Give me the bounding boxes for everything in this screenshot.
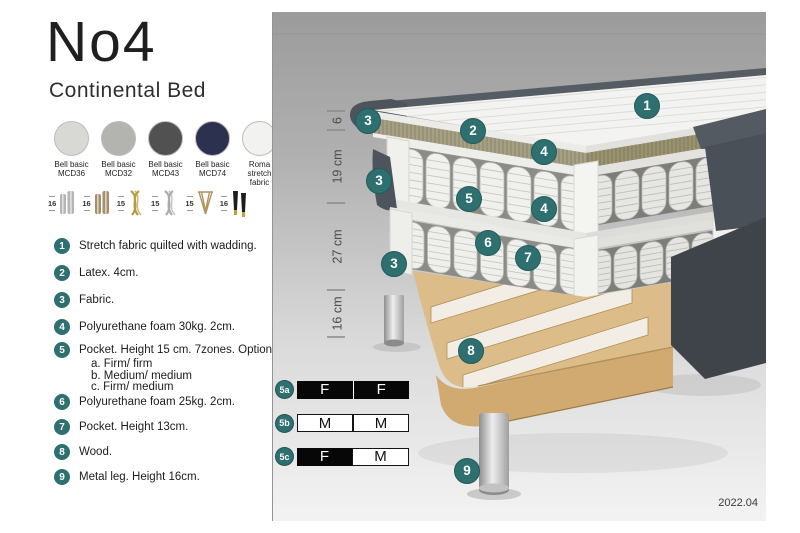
swatch-cell: Bell basicMCD43 [144, 121, 187, 187]
svg-text:3: 3 [375, 173, 383, 188]
swatch-cell: Bell basicMCD32 [97, 121, 140, 187]
leg-option: 16 [82, 189, 112, 217]
leg-size: 15 [117, 194, 125, 213]
fabric-swatch [101, 121, 136, 156]
swatch-cell: Bell basicMCD74 [191, 121, 234, 187]
leg-size: 15 [151, 194, 159, 213]
leg-option: 15 [185, 189, 215, 217]
svg-text:6: 6 [484, 235, 492, 250]
firmness-bar: MM [297, 414, 409, 432]
dimension-label: 27 cm [330, 229, 344, 263]
svg-text:3: 3 [390, 256, 398, 271]
feature-item: 8Wood. [54, 444, 112, 460]
callout-marker: 3 [367, 169, 392, 194]
firmness-row: 5bMM [275, 414, 409, 433]
feature-number-badge: 2 [54, 265, 70, 281]
metal-leg-front [479, 413, 509, 495]
callout-marker: 3 [382, 252, 407, 277]
callout-marker: 1 [635, 94, 660, 119]
feature-text: Metal leg. Height 16cm. [79, 469, 200, 483]
feature-text: Fabric. [79, 292, 114, 306]
feature-number-badge: 7 [54, 419, 70, 435]
svg-text:1: 1 [643, 98, 651, 113]
callout-marker: 4 [532, 197, 557, 222]
feature-text: Latex. 4cm. [79, 265, 138, 279]
feature-number-badge: 9 [54, 469, 70, 485]
feature-item: 4Polyurethane foam 30kg. 2cm. [54, 319, 235, 335]
leg-size: 15 [185, 194, 193, 213]
feature-text: Pocket. Height 13cm. [79, 419, 188, 433]
feature-item: 2Latex. 4cm. [54, 265, 138, 281]
swatch-cell: Bell basicMCD36 [50, 121, 93, 187]
firmness-cell: M [352, 448, 409, 466]
callout-marker: 5 [457, 187, 482, 212]
leg-option: 15 [151, 189, 181, 217]
feature-text: Pocket. Height 15 cm. 7zones. Option:a. … [79, 342, 275, 394]
callout-marker: 6 [476, 231, 501, 256]
fabric-swatch [148, 121, 183, 156]
feature-number-badge: 8 [54, 444, 70, 460]
svg-text:4: 4 [540, 144, 548, 159]
firmness-cell: F [297, 448, 352, 466]
firmness-bar: FF [297, 381, 409, 399]
fabric-swatch-row: Bell basicMCD36Bell basicMCD32Bell basic… [50, 121, 281, 187]
feature-number-badge: 3 [54, 292, 70, 308]
feature-number-badge: 1 [54, 238, 70, 254]
svg-text:7: 7 [524, 250, 532, 265]
svg-text:2: 2 [469, 123, 477, 138]
feature-number-badge: 4 [54, 319, 70, 335]
firmness-id-badge: 5a [275, 380, 294, 399]
callout-marker: 4 [532, 140, 557, 165]
bed-cutaway-illustration: 619 cm27 cm16 cm 123435467389 [273, 13, 766, 521]
leg-option: 15 [117, 189, 147, 217]
feature-options: a. Firm/ firmb. Medium/ mediumc. Firm/ m… [91, 359, 275, 394]
feature-item: 1Stretch fabric quilted with wadding. [54, 238, 257, 254]
feature-text: Stretch fabric quilted with wadding. [79, 238, 257, 252]
leg-option: 16 [220, 189, 250, 217]
cylinder-bronze-leg-icon [93, 189, 113, 217]
twist-silver-leg-icon [161, 189, 181, 217]
black-gold-leg-icon [230, 189, 250, 217]
firmness-id-badge: 5b [275, 414, 294, 433]
leg-size: 16 [82, 194, 90, 213]
feature-item: 9Metal leg. Height 16cm. [54, 469, 200, 485]
svg-text:8: 8 [467, 343, 475, 358]
leg-options-row: 161615151516 [48, 189, 250, 217]
swatch-label: Bell basicMCD74 [191, 160, 234, 178]
swatch-label: Bell basicMCD43 [144, 160, 187, 178]
svg-text:4: 4 [540, 201, 548, 216]
swatch-label: Bell basicMCD36 [50, 160, 93, 178]
callout-marker: 2 [461, 119, 486, 144]
page-title: No4 [46, 14, 157, 71]
dimension-label: 16 cm [330, 296, 344, 330]
cylinder-silver-leg-icon [58, 189, 78, 217]
callout-marker: 3 [356, 109, 381, 134]
callout-marker: 7 [516, 246, 541, 271]
feature-item: 3Fabric. [54, 292, 114, 308]
firmness-cell: F [297, 381, 353, 399]
firmness-cell: M [353, 414, 409, 432]
leg-size: 16 [48, 194, 56, 213]
svg-text:3: 3 [364, 113, 372, 128]
dimension-label: 6 [330, 117, 344, 124]
leg-size: 16 [220, 194, 228, 213]
feature-text: Wood. [79, 444, 112, 458]
svg-text:5: 5 [465, 191, 473, 206]
firmness-bar: FM [297, 448, 409, 466]
firmness-id-badge: 5c [275, 447, 294, 466]
leg-option: 16 [48, 189, 78, 217]
feature-text: Polyurethane foam 30kg. 2cm. [79, 319, 235, 333]
firmness-row: 5cFM [275, 447, 409, 466]
feature-text: Polyurethane foam 25kg. 2cm. [79, 394, 235, 408]
version-label: 2022.04 [718, 497, 758, 509]
firmness-cell: F [353, 381, 410, 399]
callout-marker: 9 [455, 459, 480, 484]
twist-gold-leg-icon [127, 189, 147, 217]
feature-item: 7Pocket. Height 13cm. [54, 419, 188, 435]
firmness-row: 5aFF [275, 380, 409, 399]
swatch-label: Bell basicMCD32 [97, 160, 140, 178]
page-subtitle: Continental Bed [49, 79, 206, 103]
feature-number-badge: 5 [54, 342, 70, 358]
callout-marker: 8 [459, 339, 484, 364]
cutaway-panel: 619 cm27 cm16 cm 123435467389 5aFF5bMM5c… [272, 12, 766, 521]
dimension-label: 19 cm [330, 149, 344, 183]
product-sheet: No4 Continental Bed Bell basicMCD36Bell … [0, 0, 800, 533]
fabric-swatch [54, 121, 89, 156]
svg-text:9: 9 [463, 463, 471, 478]
feature-item: 5Pocket. Height 15 cm. 7zones. Option:a.… [54, 342, 275, 394]
feature-number-badge: 6 [54, 394, 70, 410]
feature-item: 6Polyurethane foam 25kg. 2cm. [54, 394, 235, 410]
background-horizon [273, 33, 766, 35]
firmness-cell: M [297, 414, 353, 432]
fabric-swatch [195, 121, 230, 156]
metal-leg-back [384, 295, 404, 347]
hairpin-gold-leg-icon [196, 189, 216, 217]
